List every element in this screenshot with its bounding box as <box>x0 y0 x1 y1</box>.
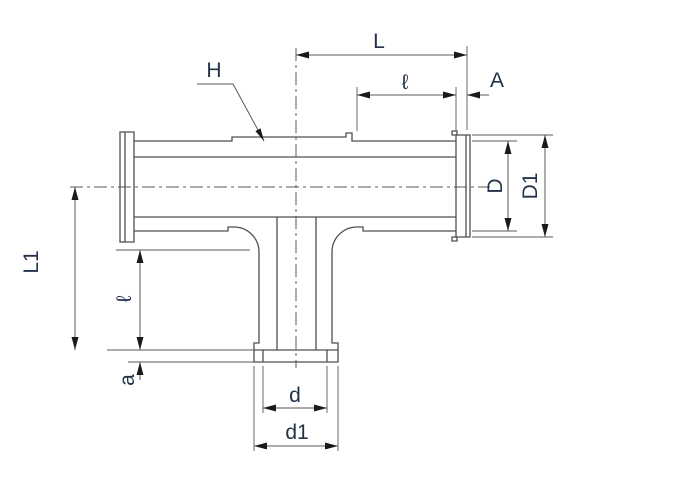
arrowhead <box>467 92 480 99</box>
centerlines <box>70 48 490 368</box>
arrowhead-right <box>443 92 456 99</box>
dim-label-D1: D1 <box>519 173 542 200</box>
dim-label-L1: L1 <box>20 250 43 273</box>
dim-label-L: L <box>373 30 385 53</box>
leader-H <box>197 84 264 141</box>
arrowhead <box>137 362 144 375</box>
arrowhead-left <box>357 92 370 99</box>
arrowhead-up <box>542 135 549 148</box>
arrowhead-left <box>254 443 267 450</box>
arrowhead-up <box>505 141 512 154</box>
right-flange-bottom-lip <box>452 237 457 241</box>
leg-right-and-tube-bottom-right <box>332 227 456 350</box>
dim-L1 <box>72 187 79 350</box>
tube-bottom-left-and-leg-left <box>134 227 259 350</box>
dim-label-ell-top: ℓ <box>402 71 409 94</box>
dim-D1 <box>542 135 549 237</box>
dim-A <box>467 92 489 99</box>
dim-label-d: d <box>289 384 301 407</box>
drawing-canvas: L ℓ A H D D1 L1 ℓ a d d1 <box>0 0 694 489</box>
dim-label-d1: d1 <box>285 421 308 444</box>
fitting-body <box>120 131 470 362</box>
right-flange <box>456 135 470 237</box>
arrowhead-right <box>314 405 327 412</box>
arrowhead-down <box>542 224 549 237</box>
tee-fitting-technical-drawing: L ℓ A H D D1 L1 ℓ a d d1 <box>0 0 694 489</box>
right-flange-top-lip <box>452 131 457 135</box>
dim-label-a: a <box>116 374 139 386</box>
dimension-lines <box>72 52 549 450</box>
arrowhead <box>255 128 264 141</box>
leader-line <box>197 84 264 141</box>
arrowhead-left <box>263 405 276 412</box>
dim-label-D: D <box>484 178 507 193</box>
arrowhead-up <box>137 250 144 263</box>
extension-lines <box>107 46 553 451</box>
dim-label-H: H <box>206 59 221 82</box>
dim-ell-branch <box>137 250 144 350</box>
arrowhead-right <box>454 52 467 59</box>
arrowhead-down <box>72 337 79 350</box>
arrowhead-up <box>72 187 79 200</box>
arrowhead-down <box>137 337 144 350</box>
arrowhead-down <box>505 218 512 231</box>
arrowhead-left <box>296 52 309 59</box>
dim-label-ell-branch: ℓ <box>113 295 136 302</box>
dim-label-A: A <box>490 69 504 92</box>
tube-top-edge <box>134 133 456 141</box>
arrowhead-right <box>325 443 338 450</box>
